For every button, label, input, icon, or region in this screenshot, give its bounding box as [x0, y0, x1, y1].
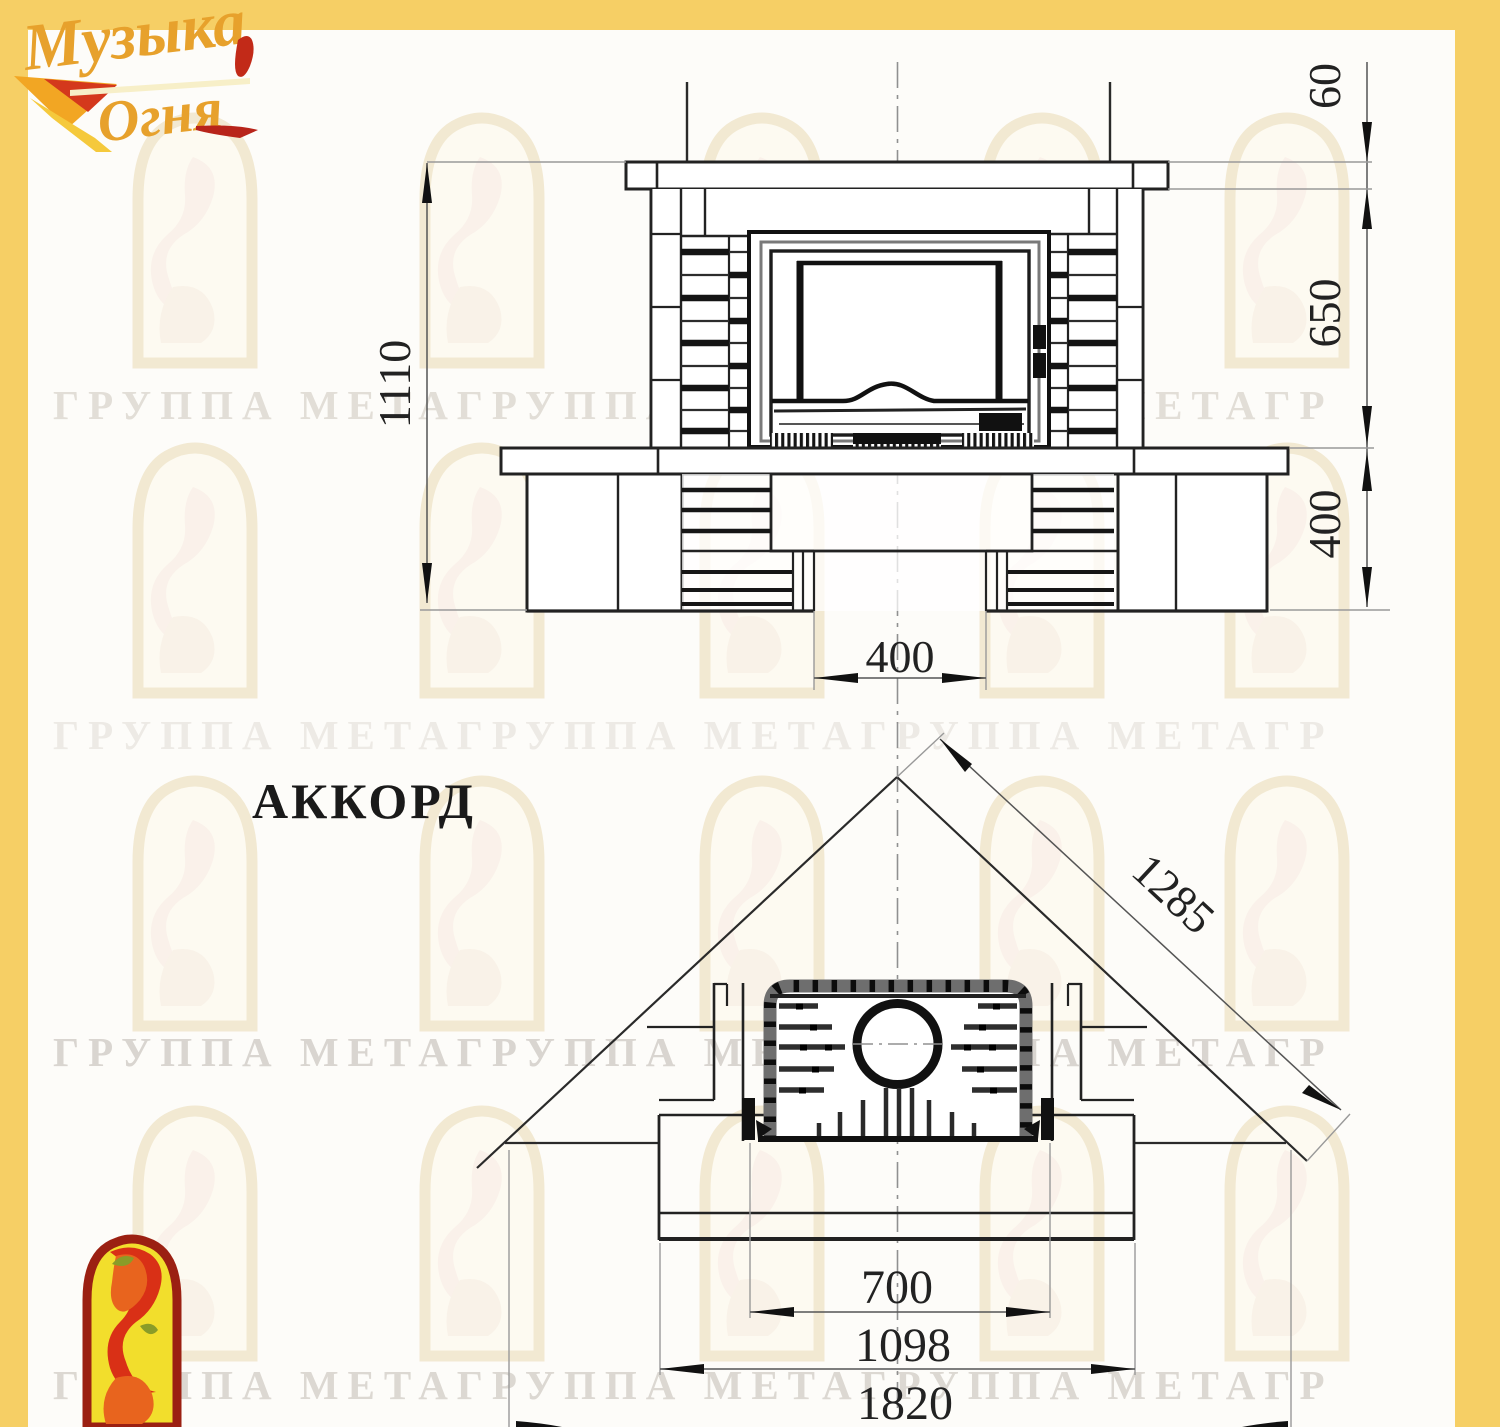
svg-text:Музыка: Музыка [18, 0, 250, 85]
svg-text:400: 400 [1299, 490, 1350, 559]
svg-text:1098: 1098 [855, 1319, 951, 1372]
svg-text:1820: 1820 [857, 1377, 953, 1427]
svg-text:АККОРД: АККОРД [252, 773, 476, 829]
svg-text:1285: 1285 [1123, 844, 1225, 944]
svg-text:1110: 1110 [369, 340, 420, 429]
svg-text:Огня: Огня [94, 75, 226, 155]
svg-text:400: 400 [866, 631, 935, 682]
svg-text:650: 650 [1299, 279, 1350, 348]
svg-text:700: 700 [861, 1261, 933, 1314]
svg-text:60: 60 [1299, 63, 1350, 109]
